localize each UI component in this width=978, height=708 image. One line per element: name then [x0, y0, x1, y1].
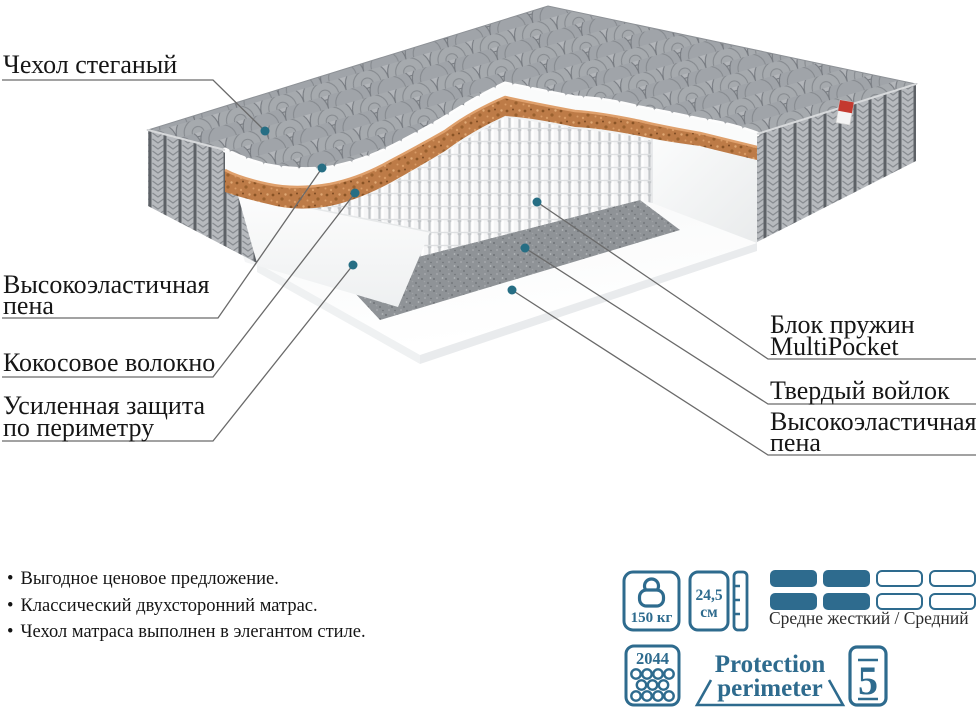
callout-dot: [261, 127, 270, 136]
springs-count-icon: 2044: [624, 644, 682, 708]
height-icon: 24,5 см: [688, 570, 750, 632]
springs-count-value: 2044: [636, 649, 669, 668]
callout-dot: [349, 261, 358, 270]
mattress-infographic: Чехол стеганый Высокоэластичная пена Кок…: [0, 0, 978, 708]
callout-label-coconut: Кокосовое волокно: [3, 348, 215, 377]
bullet-glyph: •: [7, 622, 13, 642]
callout-label-foam-right-2: пена: [770, 428, 821, 457]
firmness-bar-filled: [823, 570, 870, 587]
height-unit: см: [700, 604, 718, 621]
callout-dot: [508, 286, 517, 295]
max-weight-icon: 150 кг: [622, 570, 682, 632]
list-item: •Классический двухсторонний матрас.: [7, 593, 366, 620]
callout-dot: [521, 244, 530, 253]
height-value: 24,5: [695, 587, 722, 604]
warranty-value: 5: [858, 658, 878, 703]
protection-perimeter-logo: Protection perimeter: [694, 648, 846, 708]
firmness-bar-empty: [929, 570, 976, 587]
callout-label-foam-left-2: пена: [3, 291, 54, 320]
mattress-illustration: Чехол стеганый Высокоэластичная пена Кок…: [0, 0, 978, 540]
callout-dot: [351, 189, 360, 198]
springs-grid-icon: [631, 669, 673, 700]
firmness-bar-empty: [876, 570, 923, 587]
ruler-icon: [734, 572, 747, 630]
callout-label-springs-2: MultiPocket: [770, 332, 899, 361]
bullet-glyph: •: [7, 596, 13, 616]
callout-dot: [533, 198, 542, 207]
firmness-scale: [770, 570, 976, 610]
feature-text: Классический двухсторонний матрас.: [20, 596, 317, 616]
callout-label-cover: Чехол стеганый: [3, 50, 177, 79]
feature-list: •Выгодное ценовое предложение. •Классиче…: [7, 566, 366, 646]
logo-line1: Protection: [715, 651, 826, 678]
feature-text: Чехол матраса выполнен в элегантом стиле…: [20, 622, 365, 642]
logo-line2: perimeter: [717, 675, 822, 702]
max-weight-value: 150 кг: [631, 610, 673, 626]
bullet-glyph: •: [7, 569, 13, 589]
firmness-bar-filled: [770, 570, 817, 587]
warranty-icon: 5: [847, 644, 889, 708]
list-item: •Выгодное ценовое предложение.: [7, 566, 366, 593]
feature-text: Выгодное ценовое предложение.: [20, 569, 278, 589]
callout-dot: [318, 164, 327, 173]
list-item: •Чехол матраса выполнен в элегантом стил…: [7, 619, 366, 646]
firmness-label: Средне жесткий / Средний: [769, 608, 978, 629]
callout-label-perimeter-2: по периметру: [3, 413, 154, 442]
callout-label-felt: Твердый войлок: [770, 376, 950, 405]
kettlebell-icon: [640, 579, 664, 606]
